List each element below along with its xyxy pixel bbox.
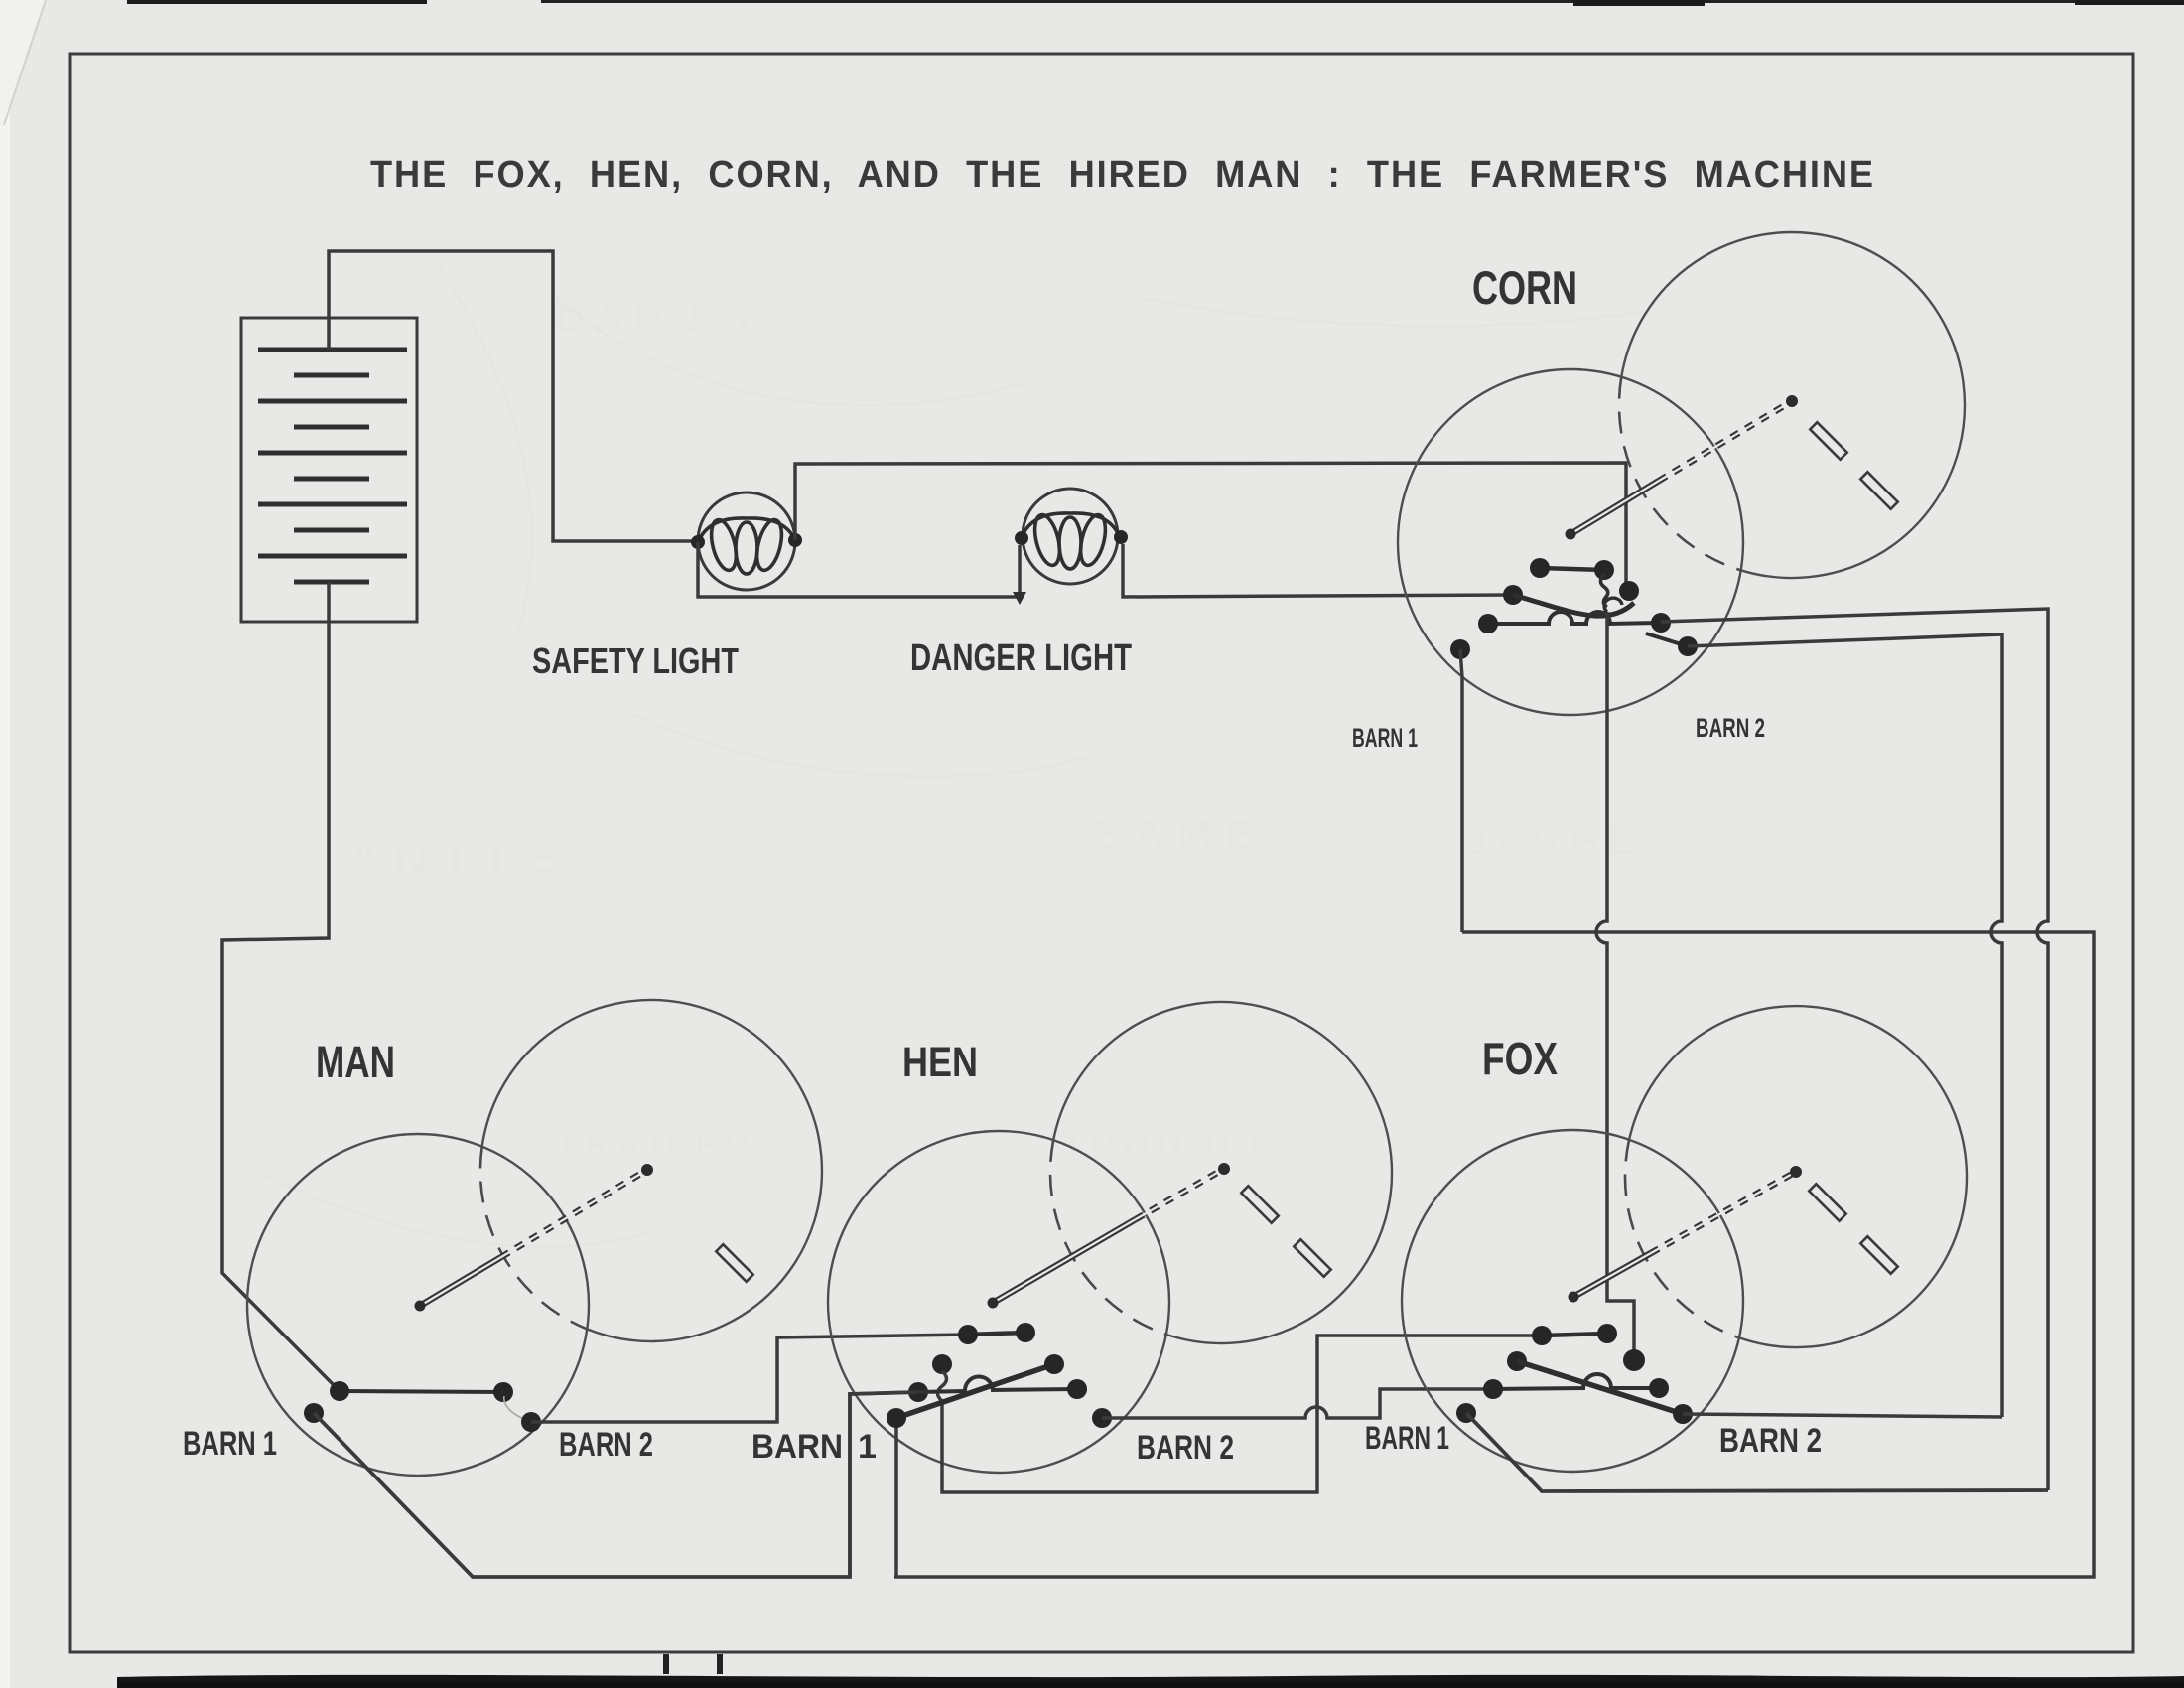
svg-text:BARN 1: BARN 1 — [183, 1425, 277, 1463]
svg-text:SAFETY LIGHT: SAFETY LIGHT — [532, 640, 739, 681]
svg-text:SAME: SAME — [1092, 810, 1266, 859]
svg-text:BARN 2: BARN 2 — [559, 1426, 653, 1464]
svg-text:MAN: MAN — [316, 1037, 395, 1087]
svg-text:ANTTE: ANTTE — [347, 832, 569, 884]
svg-text:CORN: CORN — [1472, 261, 1577, 314]
svg-text:BARN 2: BARN 2 — [1719, 1422, 1822, 1460]
svg-text:BARN 1: BARN 1 — [1352, 723, 1418, 753]
svg-text:TROUBLE: TROUBLE — [1062, 1127, 1281, 1165]
svg-text:HEN: HEN — [902, 1039, 978, 1086]
svg-text:BARGE: BARGE — [1459, 819, 1642, 863]
svg-text:FOX: FOX — [1482, 1033, 1558, 1084]
svg-text:BARN 2: BARN 2 — [1696, 713, 1765, 743]
svg-text:THE FOX, HEN, CORN, AND THE HI: THE FOX, HEN, CORN, AND THE HIRED MAN : … — [370, 154, 1875, 196]
svg-text:DARN Y: DARN Y — [556, 298, 767, 342]
svg-text:1: 1 — [858, 1428, 877, 1466]
svg-text:BARN: BARN — [751, 1428, 843, 1466]
svg-text:TRAILER: TRAILER — [556, 1127, 757, 1165]
svg-text:BARN 1: BARN 1 — [1365, 1420, 1449, 1456]
svg-text:BARN 2: BARN 2 — [1137, 1429, 1234, 1467]
svg-text:DANGER LIGHT: DANGER LIGHT — [910, 637, 1132, 679]
